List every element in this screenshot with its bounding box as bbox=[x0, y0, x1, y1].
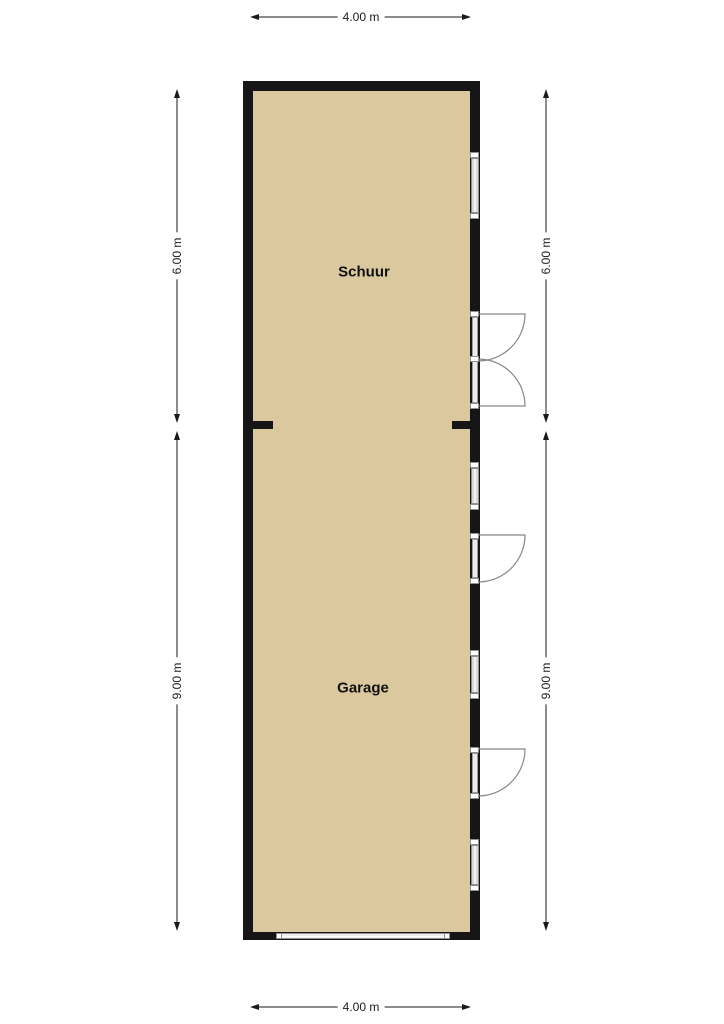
arrow-left-icon bbox=[250, 1004, 259, 1010]
window-garage-2 bbox=[471, 656, 479, 693]
window-end-cap bbox=[470, 839, 479, 845]
window-end-cap bbox=[470, 213, 479, 219]
door-end-cap bbox=[470, 578, 479, 584]
arrow-up-icon bbox=[543, 89, 549, 98]
arrow-up-icon bbox=[174, 89, 180, 98]
garage-overhead-door bbox=[276, 933, 450, 939]
door-end-cap bbox=[470, 793, 479, 799]
door-end-cap bbox=[470, 403, 479, 409]
door-end-cap bbox=[470, 311, 479, 317]
door-mid-cap bbox=[470, 356, 479, 362]
dimension-label-top: 4.00 m bbox=[338, 10, 385, 24]
floor-area bbox=[253, 91, 470, 932]
arrow-left-icon bbox=[250, 14, 259, 20]
arrow-down-icon bbox=[174, 922, 180, 931]
door-end-cap bbox=[444, 933, 450, 939]
door-threshold-garage-1 bbox=[472, 539, 478, 578]
dimension-label-left-upper: 6.00 m bbox=[170, 233, 184, 280]
arrow-up-icon bbox=[174, 431, 180, 440]
room-label-schuur: Schuur bbox=[338, 264, 390, 281]
door-threshold-garage-2 bbox=[472, 753, 478, 793]
partition-wall-stub-left bbox=[243, 421, 273, 429]
door-end-cap bbox=[470, 533, 479, 539]
window-end-cap bbox=[470, 462, 479, 468]
window-end-cap bbox=[470, 152, 479, 158]
window-garage-3 bbox=[471, 845, 479, 885]
window-end-cap bbox=[470, 693, 479, 699]
dimension-label-right-upper: 6.00 m bbox=[539, 233, 553, 280]
window-end-cap bbox=[470, 650, 479, 656]
arrow-down-icon bbox=[543, 414, 549, 423]
arrow-down-icon bbox=[543, 922, 549, 931]
window-schuur bbox=[471, 158, 479, 213]
door-leaf-swing-icon bbox=[478, 749, 525, 796]
window-end-cap bbox=[470, 885, 479, 891]
arrow-down-icon bbox=[174, 414, 180, 423]
dimension-label-bottom: 4.00 m bbox=[338, 1000, 385, 1014]
door-end-cap bbox=[470, 747, 479, 753]
floorplan-page: Schuur Garage 4.00 m 4.00 m 6.00 m 9.00 … bbox=[0, 0, 724, 1024]
partition-wall-stub-right bbox=[452, 421, 480, 429]
building-walls bbox=[243, 81, 480, 940]
dimension-label-right-lower: 9.00 m bbox=[539, 658, 553, 705]
door-leaf-swing-icon bbox=[478, 314, 525, 361]
arrow-up-icon bbox=[543, 431, 549, 440]
door-end-cap bbox=[276, 933, 282, 939]
window-garage-1 bbox=[471, 468, 479, 504]
arrow-right-icon bbox=[462, 14, 471, 20]
door-leaf-swing-icon bbox=[478, 359, 525, 406]
door-leaf-swing-icon bbox=[478, 535, 525, 582]
dimension-label-left-lower: 9.00 m bbox=[170, 658, 184, 705]
room-label-garage: Garage bbox=[337, 680, 389, 697]
arrow-right-icon bbox=[462, 1004, 471, 1010]
window-end-cap bbox=[470, 504, 479, 510]
